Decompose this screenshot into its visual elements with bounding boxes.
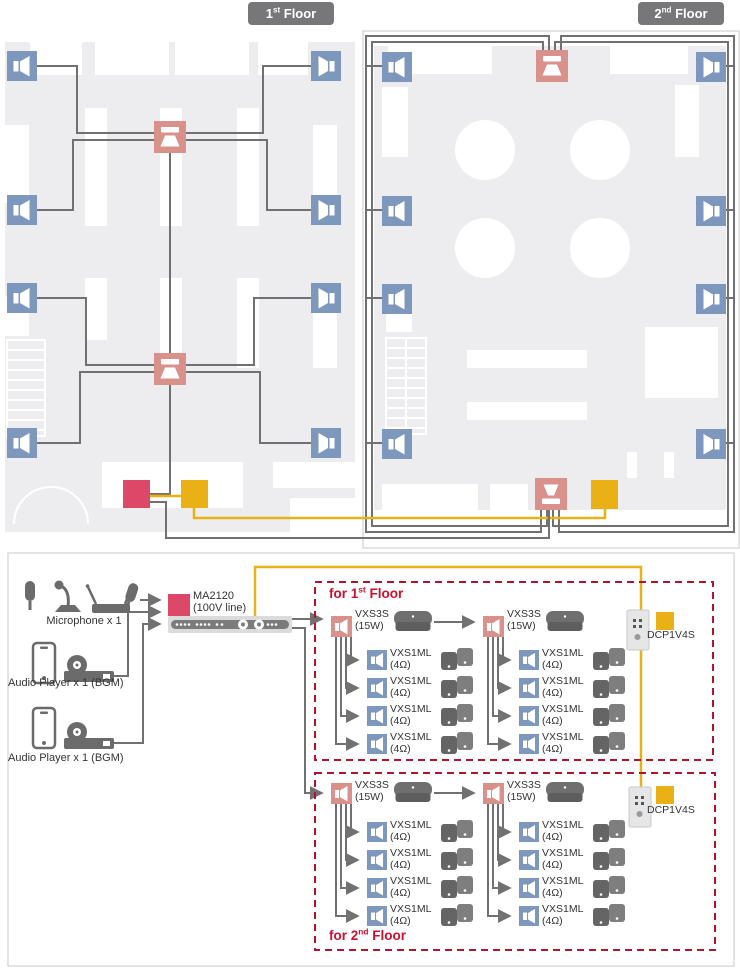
vxs3s-product-image <box>394 611 432 631</box>
wall-speaker-icon <box>382 284 412 314</box>
floor1-label-chip: 1st Floor <box>248 2 334 25</box>
vxs3s-product-image <box>546 782 584 802</box>
wall-speaker-icon <box>382 52 412 82</box>
control-panel-square <box>591 480 618 509</box>
vxs3s-icon <box>331 616 352 637</box>
dcp1v4s-square <box>656 786 674 804</box>
wall-speaker-icon <box>696 52 726 82</box>
zone1-left-row4-label: VXS1ML(4Ω) <box>390 732 431 755</box>
vxs1ml-icon <box>519 678 539 698</box>
wall-speaker-icon <box>311 195 341 225</box>
zone2-right-row3-label: VXS1ML(4Ω) <box>542 876 583 899</box>
surface-speaker-icon <box>535 478 567 510</box>
ma2120-square <box>168 594 190 616</box>
wall-speaker-icon <box>696 284 726 314</box>
vxs1ml-icon <box>367 650 387 670</box>
wall-speaker-icon <box>7 283 37 313</box>
wall-speaker-icon <box>696 429 726 459</box>
control-panel-square <box>181 480 208 508</box>
vxs3s-product-image <box>394 782 432 802</box>
wall-speaker-icon <box>7 428 37 458</box>
ma2120-front-panel <box>168 616 292 633</box>
zone2-right-row4-label: VXS1ML(4Ω) <box>542 904 583 927</box>
wall-speaker-icon <box>382 429 412 459</box>
zone2-right-row1-label: VXS1ML(4Ω) <box>542 820 583 843</box>
smartphone-icon <box>33 708 55 748</box>
audio-player1-label: Audio Player x 1 (BGM) <box>8 677 124 689</box>
microphone-label: Microphone x 1 <box>18 615 150 627</box>
vxs1ml-icon <box>367 706 387 726</box>
vxs3s-icon <box>483 616 504 637</box>
vxs3s-icon <box>331 783 352 804</box>
audio-player2-label: Audio Player x 1 (BGM) <box>8 752 124 764</box>
wall-speaker-icon <box>311 428 341 458</box>
zone2-left-row3-label: VXS1ML(4Ω) <box>390 876 431 899</box>
zone2-col2-speaker-label: VXS3S(15W) <box>507 780 541 803</box>
vxs1ml-icon <box>367 734 387 754</box>
zone2-title: for 2nd Floor <box>329 928 406 943</box>
zone1-left-row1-label: VXS1ML(4Ω) <box>390 648 431 671</box>
vxs1ml-icon <box>367 822 387 842</box>
dcp1v4s-plate-icon <box>627 610 649 650</box>
zone1-right-row2-label: VXS1ML(4Ω) <box>542 676 583 699</box>
wall-speaker-icon <box>7 51 37 81</box>
vxs1ml-icon <box>367 850 387 870</box>
floor1-plan <box>5 42 355 532</box>
wall-speaker-icon <box>696 196 726 226</box>
wall-speaker-icon <box>382 196 412 226</box>
vxs1ml-icon <box>519 706 539 726</box>
surface-speaker-icon <box>154 121 186 153</box>
vxs1ml-icon <box>519 878 539 898</box>
diagram-graphics <box>0 0 740 968</box>
vxs1ml-icon <box>367 878 387 898</box>
installation-diagram: 1st Floor 2nd Floor Microphone x 1 Audio… <box>0 0 740 968</box>
floor2-plan <box>363 31 739 548</box>
zone2-left-row2-label: VXS1ML(4Ω) <box>390 848 431 871</box>
surface-speaker-icon <box>536 50 568 82</box>
vxs1ml-icon <box>519 822 539 842</box>
vxs3s-product-image <box>546 611 584 631</box>
zone1-dcp-label: DCP1V4S <box>647 630 695 642</box>
zone1-title: for 1st Floor <box>329 586 403 601</box>
zone1-right-row4-label: VXS1ML(4Ω) <box>542 732 583 755</box>
wall-speaker-icon <box>311 51 341 81</box>
vxs1ml-icon <box>519 850 539 870</box>
surface-speaker-icon <box>154 353 186 385</box>
amplifier-label: MA2120 (100V line) <box>193 590 246 614</box>
vxs1ml-icon <box>367 678 387 698</box>
zone2-left-row4-label: VXS1ML(4Ω) <box>390 904 431 927</box>
vxs1ml-icon <box>367 906 387 926</box>
zone2-col1-speaker-label: VXS3S(15W) <box>355 780 389 803</box>
zone1-right-row1-label: VXS1ML(4Ω) <box>542 648 583 671</box>
zone2-right-row2-label: VXS1ML(4Ω) <box>542 848 583 871</box>
floor2-label-chip: 2nd Floor <box>638 2 724 25</box>
zone1-col1-speaker-label: VXS3S(15W) <box>355 609 389 632</box>
vxs1ml-icon <box>519 734 539 754</box>
zone1-right-row3-label: VXS1ML(4Ω) <box>542 704 583 727</box>
zone1-col2-speaker-label: VXS3S(15W) <box>507 609 541 632</box>
zone2-dcp-label: DCP1V4S <box>647 805 695 817</box>
amplifier-square <box>123 480 150 508</box>
vxs1ml-icon <box>519 650 539 670</box>
zone2-left-row1-label: VXS1ML(4Ω) <box>390 820 431 843</box>
wall-speaker-icon <box>7 195 37 225</box>
dcp1v4s-square <box>656 612 674 630</box>
wall-speaker-icon <box>311 283 341 313</box>
zone1-left-row2-label: VXS1ML(4Ω) <box>390 676 431 699</box>
vxs1ml-icon <box>519 906 539 926</box>
vxs3s-icon <box>483 783 504 804</box>
zone1-left-row3-label: VXS1ML(4Ω) <box>390 704 431 727</box>
